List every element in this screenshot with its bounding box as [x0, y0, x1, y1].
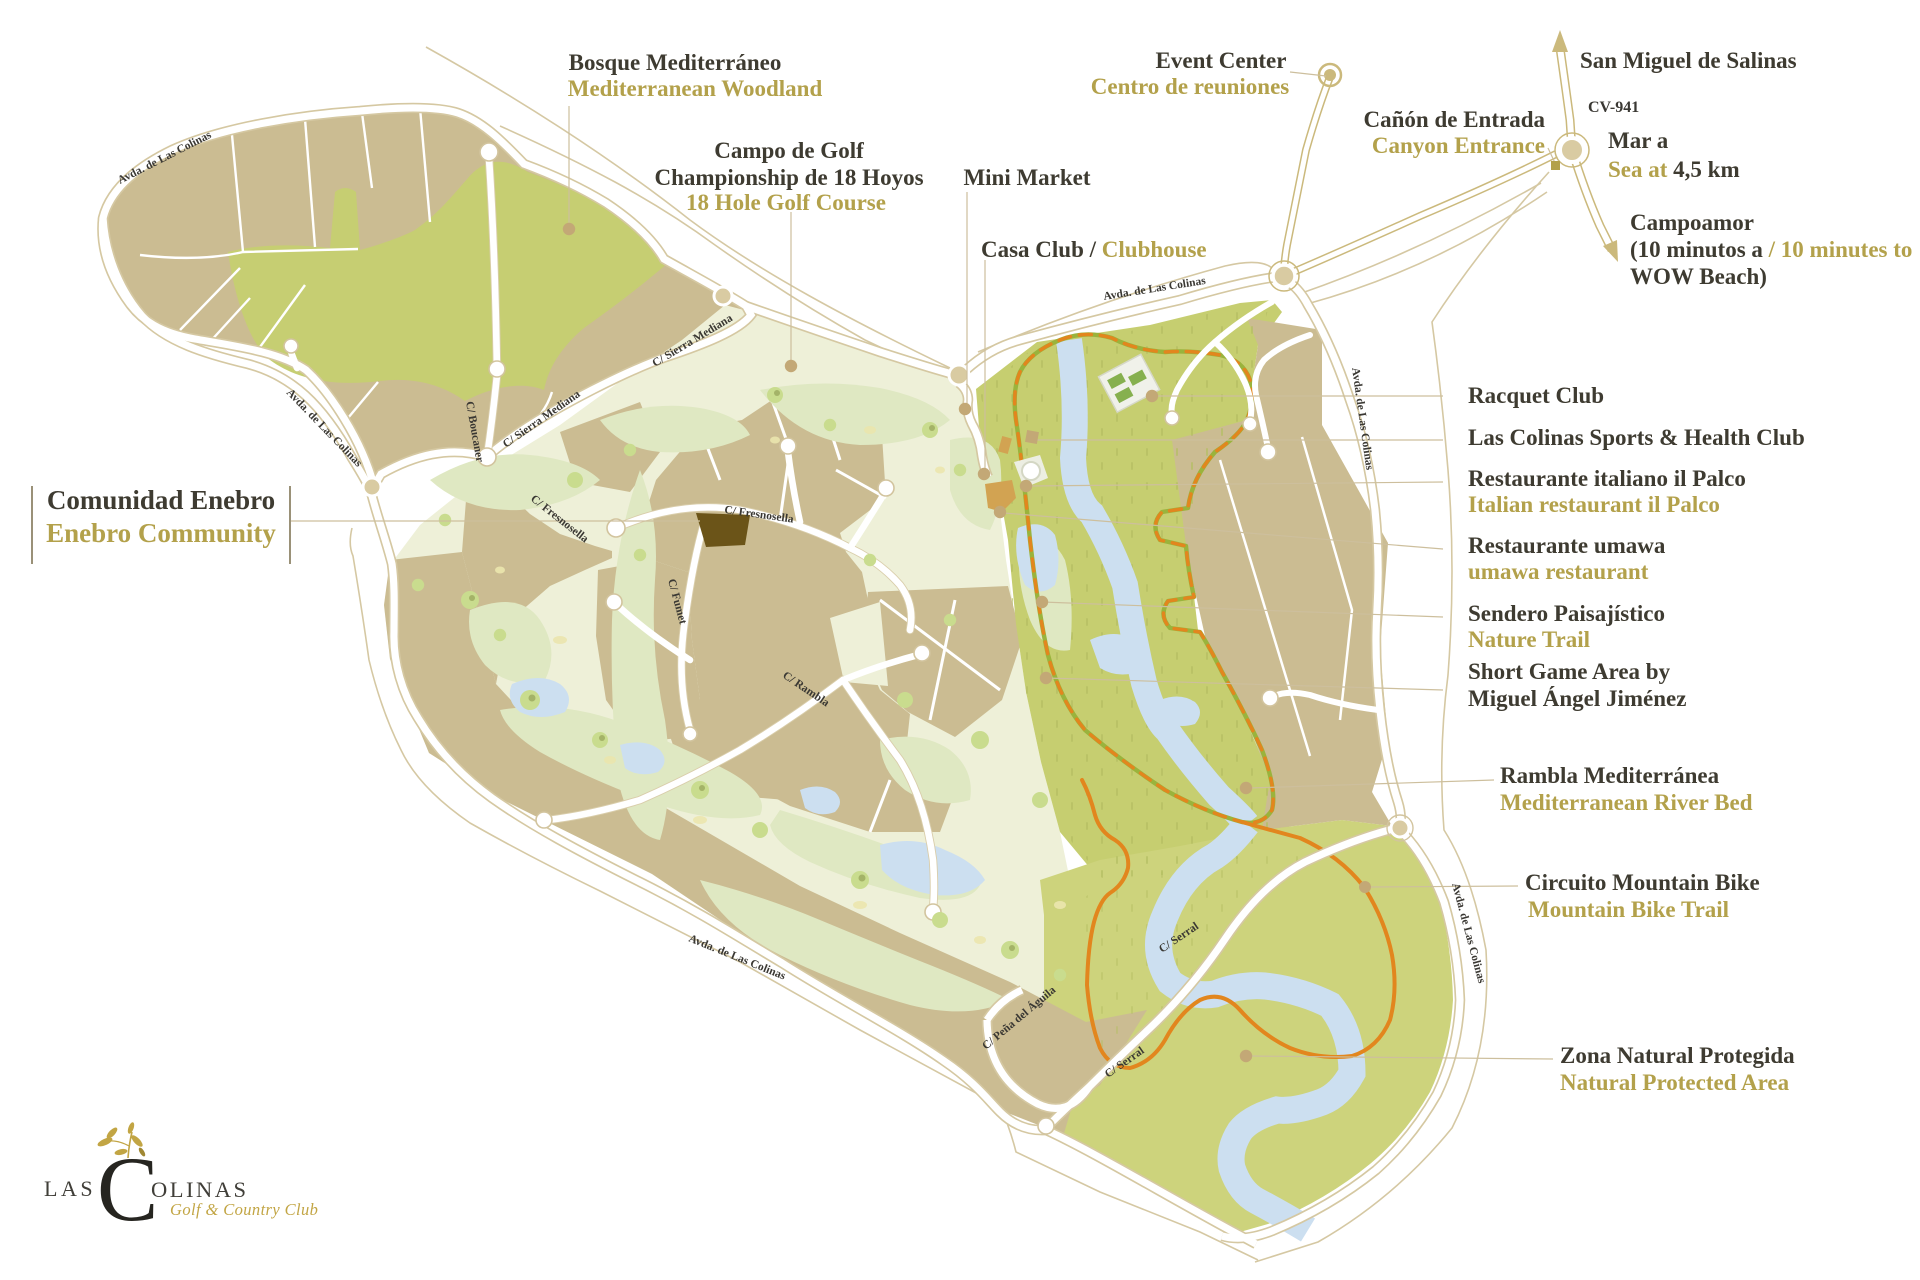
svg-text:LAS: LAS — [44, 1176, 96, 1201]
svg-text:CV-941: CV-941 — [1588, 99, 1639, 116]
svg-text:Golf & Country Club: Golf & Country Club — [170, 1200, 318, 1219]
svg-text:OLINAS: OLINAS — [151, 1177, 249, 1202]
